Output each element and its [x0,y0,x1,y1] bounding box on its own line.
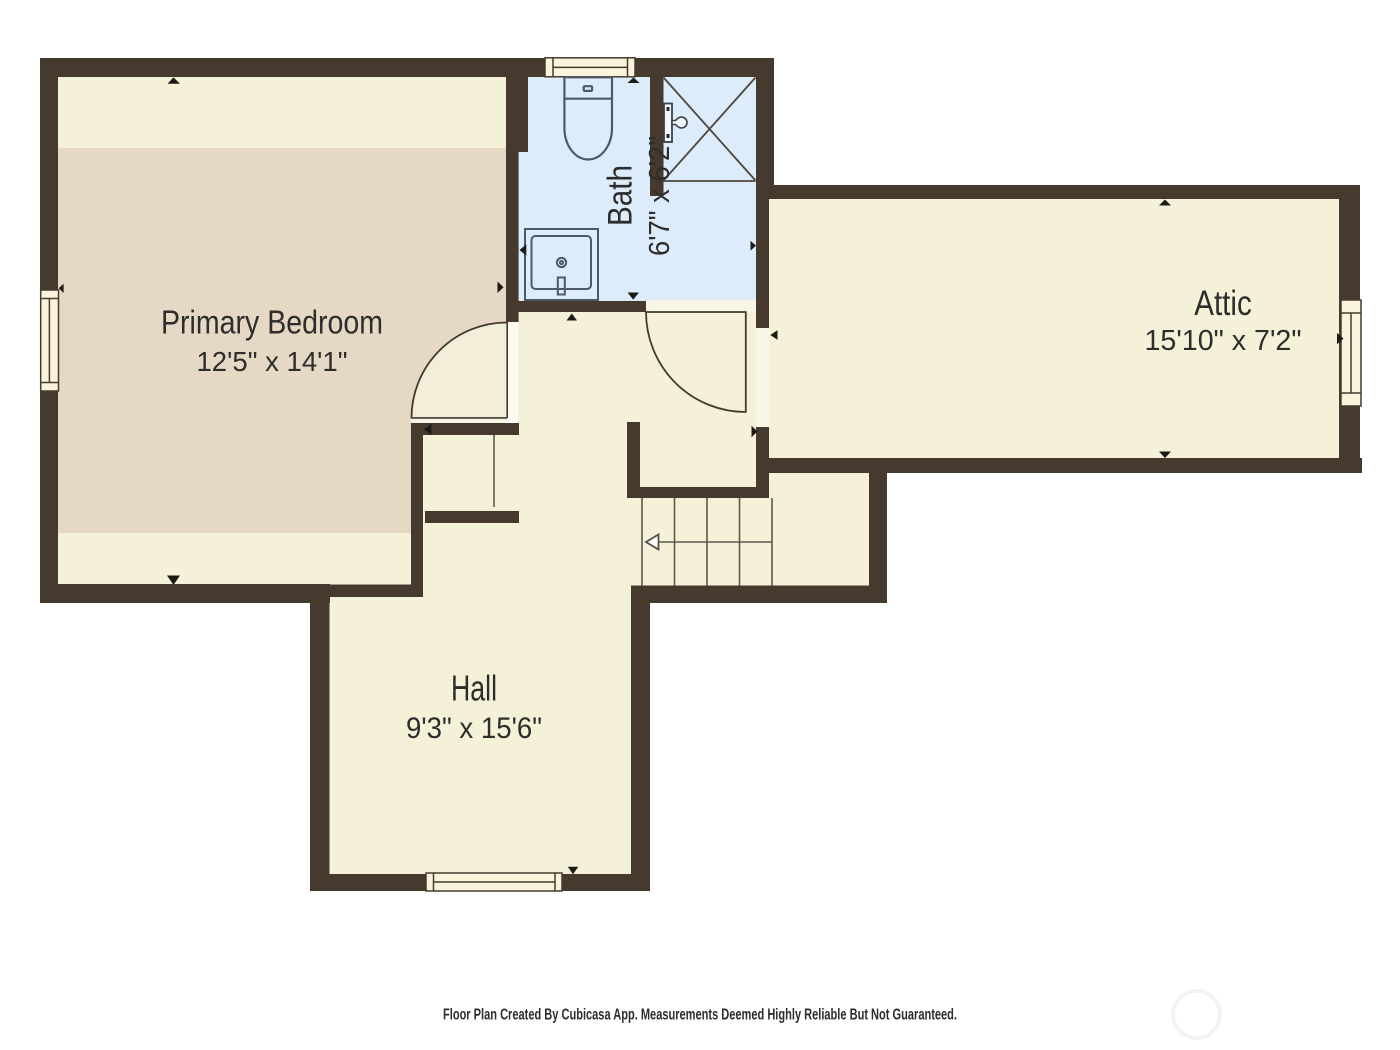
svg-text:6'7" x 6'2": 6'7" x 6'2" [644,136,676,256]
svg-text:12'5" x 14'1": 12'5" x 14'1" [197,346,348,377]
svg-text:9'3" x 15'6": 9'3" x 15'6" [406,712,542,745]
svg-text:Hall: Hall [451,668,497,709]
svg-text:15'10" x 7'2": 15'10" x 7'2" [1145,325,1302,357]
svg-text:Primary Bedroom: Primary Bedroom [161,305,383,342]
svg-text:Floor Plan Created By Cubicasa: Floor Plan Created By Cubicasa App. Meas… [443,1007,957,1024]
svg-text:Bath: Bath [602,165,640,226]
svg-text:Attic: Attic [1194,284,1252,323]
